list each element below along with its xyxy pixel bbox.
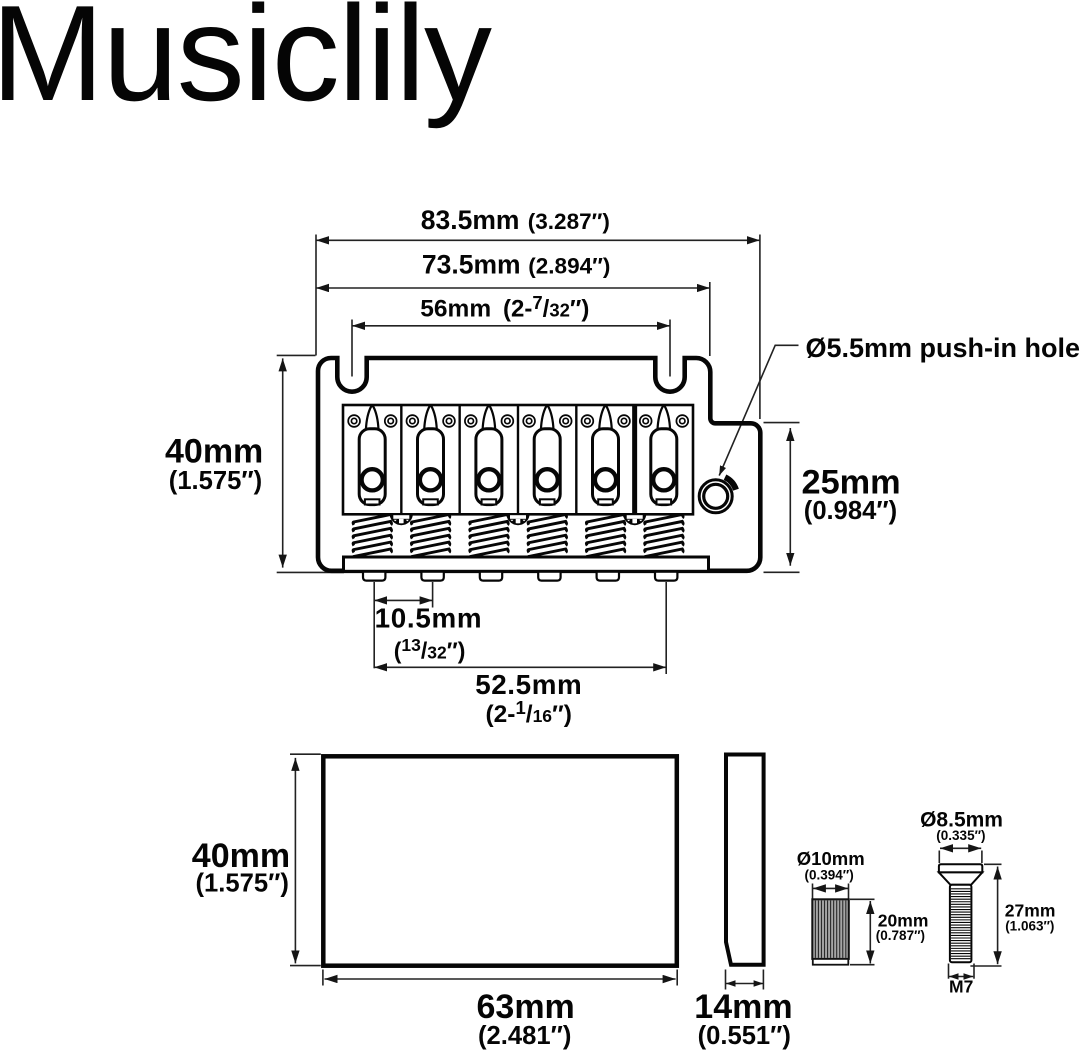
svg-text:25mm: 25mm	[802, 464, 901, 502]
svg-text:40mm: 40mm	[165, 432, 263, 470]
svg-text:73.5mm: 73.5mm	[422, 250, 521, 280]
svg-text:(0.551″): (0.551″)	[698, 1022, 791, 1050]
svg-text:M7: M7	[949, 977, 973, 997]
svg-text:(0.394″): (0.394″)	[805, 868, 854, 883]
svg-text:(0.335″): (0.335″)	[936, 828, 985, 843]
svg-text:52.5mm: 52.5mm	[475, 669, 582, 700]
svg-text:(2-1/16″): (2-1/16″)	[486, 697, 572, 728]
svg-text:(1.063″): (1.063″)	[1005, 918, 1054, 933]
svg-text:(2.894″): (2.894″)	[528, 254, 610, 279]
svg-text:63mm: 63mm	[477, 988, 575, 1026]
svg-text:83.5mm: 83.5mm	[421, 205, 520, 235]
svg-text:(0.984″): (0.984″)	[804, 497, 897, 525]
svg-text:14mm: 14mm	[694, 988, 792, 1026]
svg-text:(2.481″): (2.481″)	[478, 1022, 571, 1050]
svg-text:Musiclily: Musiclily	[0, 0, 492, 129]
svg-text:(0.787″): (0.787″)	[876, 928, 925, 943]
svg-text:(1.575″): (1.575″)	[196, 869, 289, 897]
svg-text:(2-7/32″): (2-7/32″)	[503, 292, 589, 323]
svg-text:10.5mm: 10.5mm	[375, 603, 483, 634]
svg-text:56mm: 56mm	[420, 296, 491, 323]
svg-text:Ø5.5mm push-in hole: Ø5.5mm push-in hole	[806, 333, 1080, 363]
svg-text:Ø10mm: Ø10mm	[797, 848, 865, 869]
svg-text:(1.575″): (1.575″)	[169, 467, 262, 495]
svg-text:(3.287″): (3.287″)	[528, 209, 610, 234]
